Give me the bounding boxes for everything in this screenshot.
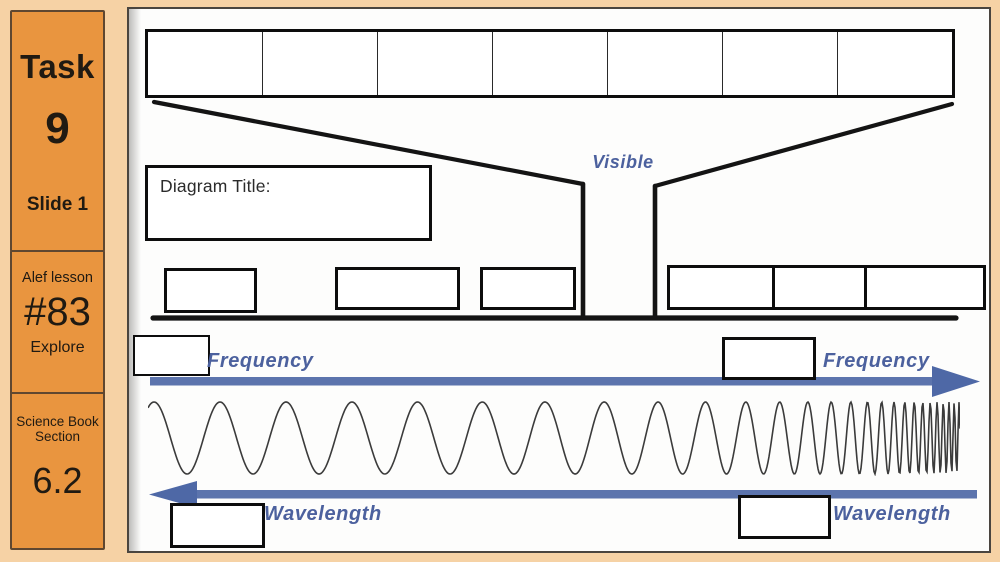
- answer-box-left-3[interactable]: [480, 267, 576, 310]
- spectrum-band-cell-5[interactable]: [608, 32, 723, 95]
- wavelength-label-right: Wavelength: [833, 503, 951, 526]
- chirp-wave: [148, 400, 960, 476]
- spectrum-band-cell-3[interactable]: [378, 32, 493, 95]
- spectrum-band-table: [145, 29, 955, 98]
- spectrum-band-cell-1[interactable]: [148, 32, 263, 95]
- answer-box-left-2[interactable]: [335, 267, 460, 310]
- answer-box-right-group: [667, 265, 986, 310]
- chirp-wave-path: [148, 402, 960, 474]
- diagram-title-box[interactable]: Diagram Title:: [145, 165, 432, 241]
- answer-box-right-2[interactable]: [775, 268, 867, 307]
- diagram-title-label: Diagram Title:: [160, 176, 271, 196]
- slide-label: Slide 1: [27, 194, 88, 216]
- lesson-number: #83: [24, 290, 91, 335]
- spectrum-band-cell-2[interactable]: [263, 32, 378, 95]
- wavelength-label-left: Wavelength: [264, 503, 382, 526]
- slide-canvas: Diagram Title: Visible Frequency Frequen…: [127, 7, 991, 553]
- book-title-line2: Section: [35, 429, 80, 444]
- frequency-label-right: Frequency: [823, 350, 930, 373]
- task-label: Task: [20, 48, 95, 86]
- frequency-answer-box-right[interactable]: [722, 337, 816, 380]
- visible-label: Visible: [576, 152, 670, 173]
- sidebar-panel-book: Science Book Section 6.2: [10, 392, 105, 550]
- lesson-phase-label: Explore: [30, 339, 84, 357]
- sidebar-panel-task: Task 9 Slide 1: [10, 10, 105, 252]
- frequency-answer-box-left[interactable]: [133, 335, 210, 376]
- sidebar-panel-lesson: Alef lesson #83 Explore: [10, 250, 105, 395]
- wavelength-answer-box-left[interactable]: [170, 503, 265, 548]
- task-number: 9: [45, 104, 69, 154]
- book-section-number: 6.2: [32, 460, 82, 502]
- wavelength-answer-box-right[interactable]: [738, 495, 831, 539]
- spectrum-band-cell-7[interactable]: [838, 32, 952, 95]
- spectrum-band-cell-6[interactable]: [723, 32, 838, 95]
- answer-box-right-1[interactable]: [670, 268, 775, 307]
- answer-box-right-3[interactable]: [867, 268, 983, 307]
- book-title-line1: Science Book: [16, 414, 99, 429]
- sidebar: Task 9 Slide 1 Alef lesson #83 Explore S…: [10, 10, 105, 550]
- frequency-label-left: Frequency: [207, 350, 314, 373]
- answer-box-left-1[interactable]: [164, 268, 257, 313]
- spectrum-band-cell-4[interactable]: [493, 32, 608, 95]
- lesson-label: Alef lesson: [22, 270, 93, 286]
